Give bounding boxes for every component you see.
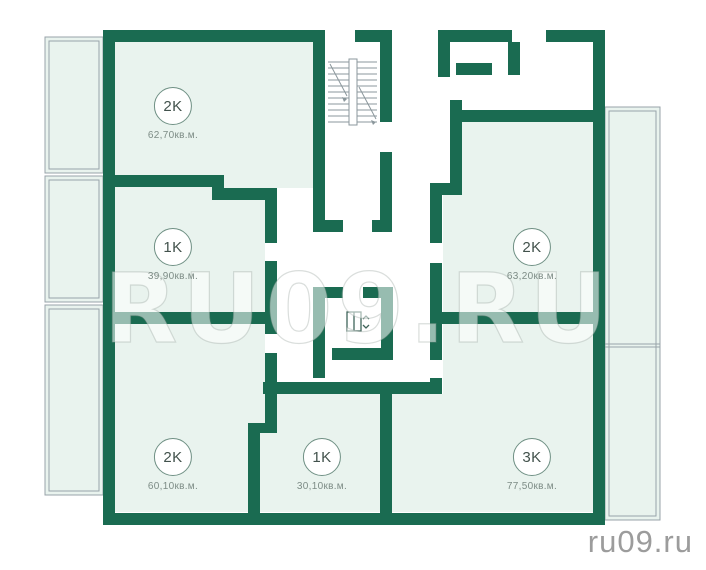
- room-2k-top-left: [115, 42, 313, 188]
- room-area-label: 39,90кв.м.: [148, 271, 198, 282]
- balcony-left-bottom: [45, 305, 103, 495]
- room-area-label: 77,50кв.м.: [507, 481, 557, 492]
- room-area-label: 60,10кв.м.: [148, 481, 198, 492]
- room-type-badge: 2K: [154, 438, 192, 476]
- apartment-label: 2K 62,70кв.м.: [148, 87, 198, 141]
- room-area-label: 62,70кв.м.: [148, 130, 198, 141]
- stairs-icon: [328, 59, 377, 125]
- watermark-corner: ru09.ru: [588, 524, 693, 560]
- floor-plan-drawing: RU09.RU: [0, 0, 706, 570]
- room-type-badge: 2K: [154, 87, 192, 125]
- floor-plan: RU09.RU 2K 62,70кв.м. 1K 39,90кв.м. 2K 6…: [0, 0, 706, 570]
- apartment-label: 1K 39,90кв.м.: [148, 228, 198, 282]
- apartment-label: 1K 30,10кв.м.: [297, 438, 347, 492]
- room-type-badge: 1K: [303, 438, 341, 476]
- room-area-label: 30,10кв.м.: [297, 481, 347, 492]
- apartment-label: 2K 60,10кв.м.: [148, 438, 198, 492]
- apartment-label: 2K 63,20кв.м.: [507, 228, 557, 282]
- apartment-label: 3K 77,50кв.м.: [507, 438, 557, 492]
- room-type-badge: 3K: [513, 438, 551, 476]
- room-type-badge: 1K: [154, 228, 192, 266]
- balcony-left-middle: [45, 176, 103, 302]
- balcony-right: [605, 107, 660, 520]
- room-type-badge: 2K: [513, 228, 551, 266]
- balcony-left-top: [45, 37, 103, 173]
- room-area-label: 63,20кв.м.: [507, 271, 557, 282]
